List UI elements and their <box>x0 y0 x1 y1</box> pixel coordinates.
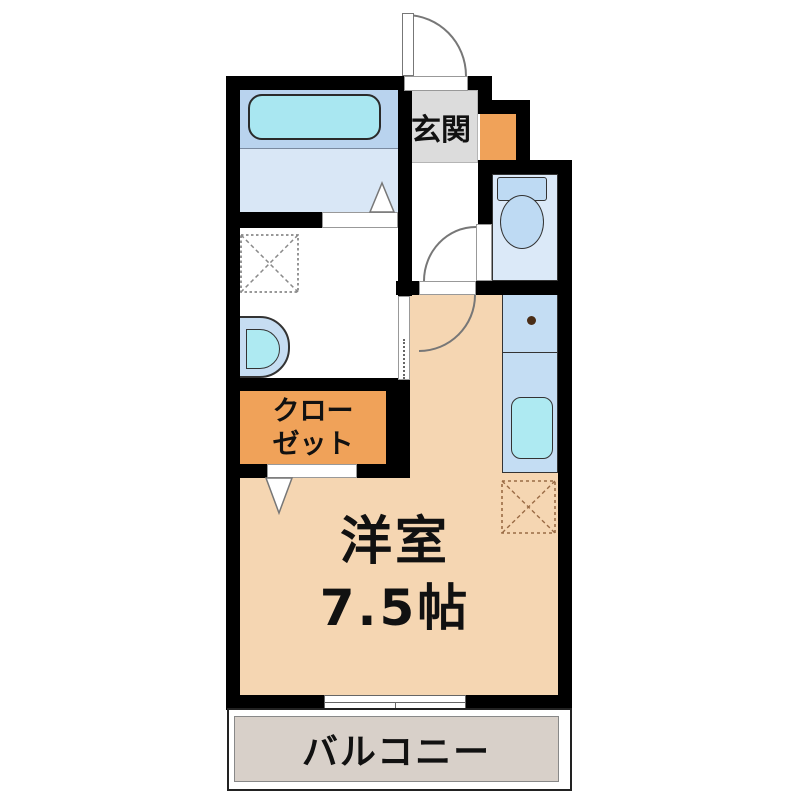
shoe-cabinet <box>480 114 517 160</box>
toilet-door-leaf <box>476 224 492 281</box>
wall <box>476 281 572 295</box>
wall <box>398 76 412 296</box>
wall <box>516 100 530 162</box>
wall <box>226 378 410 391</box>
room-doorway <box>419 281 476 295</box>
closet-label-line2: ゼット <box>273 428 354 461</box>
bathroom-folding-door <box>368 181 396 214</box>
sliding-door-track <box>403 339 405 379</box>
wall <box>396 281 419 295</box>
wall <box>226 212 322 228</box>
sliding-door <box>398 296 410 380</box>
toilet-door-swing <box>423 226 476 281</box>
floor-plan: 玄関 クロー ゼット <box>0 0 800 800</box>
toilet-bowl <box>500 195 544 249</box>
main-room-label: 洋室 7.5帖 <box>250 500 540 650</box>
wall <box>386 378 410 478</box>
bathroom-doorway <box>322 212 398 228</box>
stove-burner <box>527 316 536 325</box>
entrance-door-swing <box>406 14 467 76</box>
kitchen-sink <box>511 397 553 459</box>
bathtub <box>248 94 381 140</box>
wash-basin <box>238 316 290 378</box>
balcony-label: バルコニー <box>234 716 559 782</box>
wall <box>226 76 412 90</box>
wall <box>226 76 240 710</box>
closet-label: クロー ゼット <box>240 391 386 464</box>
entrance-doorway <box>404 76 468 91</box>
wall <box>468 76 492 90</box>
wall <box>478 174 492 226</box>
closet-label-line1: クロー <box>273 395 354 428</box>
washing-machine-space <box>239 233 300 294</box>
wash-basin-bowl <box>246 329 280 369</box>
entrance-label: 玄関 <box>404 90 478 163</box>
wall <box>226 464 267 478</box>
entrance-door-leaf <box>402 13 414 76</box>
wall <box>357 464 410 478</box>
wall <box>558 160 572 710</box>
main-room-size: 7.5帖 <box>320 575 471 641</box>
main-room-name: 洋室 <box>340 509 450 575</box>
counter-divider <box>502 352 558 353</box>
